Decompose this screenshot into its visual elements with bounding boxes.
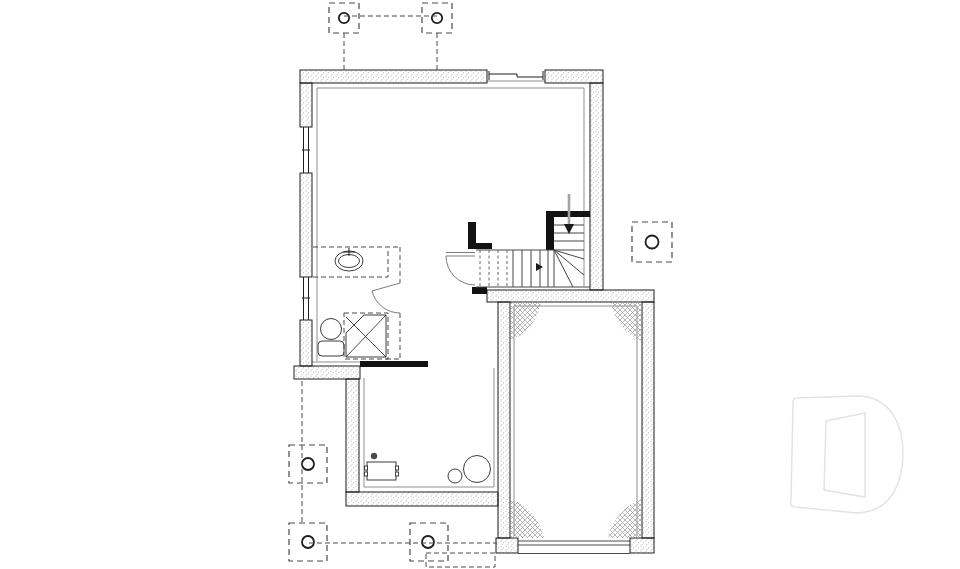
wall-garage-stub-right <box>630 538 654 553</box>
toilet-bowl-icon <box>321 319 342 340</box>
electrical-panel-icon <box>367 462 396 480</box>
wall-wing-left <box>346 379 359 492</box>
panel-tab <box>365 466 368 470</box>
pier-post-icon <box>646 236 659 249</box>
floor-plan-page <box>0 0 960 569</box>
panel-tab <box>396 472 399 476</box>
pier-post-icon <box>302 458 314 470</box>
pier-post-icon <box>339 13 349 23</box>
wall-top-left <box>300 70 487 83</box>
sink-basin <box>339 255 360 268</box>
wall-garage-right <box>642 302 654 538</box>
wall-top-right <box>545 70 603 83</box>
water-heater-icon <box>464 456 491 483</box>
pier-post-icon <box>302 536 314 548</box>
wall-left-3 <box>300 320 312 366</box>
wall-wing-bottom <box>346 492 498 506</box>
partition-stair-left <box>468 222 476 244</box>
wall-left-1 <box>300 83 312 127</box>
pier-post-icon <box>422 536 434 548</box>
toilet-tank <box>318 341 344 356</box>
partition-stair-newel <box>546 211 554 250</box>
floor-plan-drawing <box>0 0 960 569</box>
tank-small-icon <box>448 469 462 483</box>
partition-stair-cap <box>468 243 492 249</box>
panel-tab <box>365 472 368 476</box>
partition-door-stub <box>472 287 487 294</box>
wall-right <box>590 83 603 290</box>
wall-garage-stub-left <box>496 538 518 553</box>
wall-left-2 <box>300 173 312 277</box>
partition-bath-mech <box>360 361 428 367</box>
wall-garage-left <box>498 302 510 538</box>
panel-tab <box>396 466 399 470</box>
wall-jog <box>294 366 360 379</box>
floor-drain-icon <box>371 453 377 459</box>
pier-post-icon <box>432 13 442 23</box>
wall-garage-top <box>487 290 654 302</box>
